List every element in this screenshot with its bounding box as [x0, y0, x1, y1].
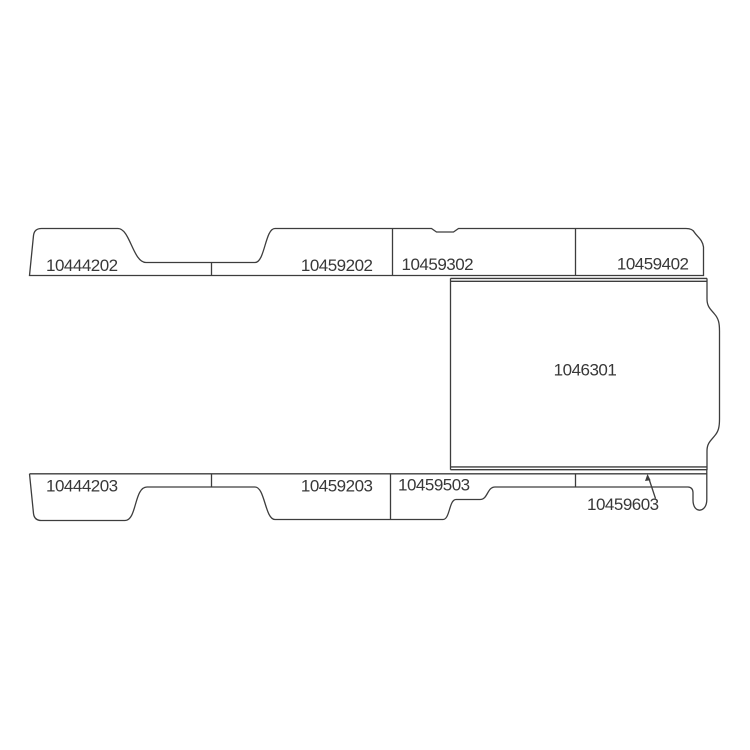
parts-diagram-canvas: 10444202 10459202 10459302 10459402 1046… — [0, 0, 750, 750]
part-label-10459302: 10459302 — [402, 255, 474, 274]
part-10459603-arrowhead — [645, 474, 651, 481]
part-label-1046301: 1046301 — [554, 361, 617, 380]
part-label-10459203: 10459203 — [301, 477, 373, 496]
parts-diagram-page: 10444202 10459202 10459302 10459402 1046… — [0, 0, 750, 750]
part-label-10444203: 10444203 — [46, 477, 118, 496]
part-label-10459503: 10459503 — [398, 476, 470, 495]
center-panel-right-edge — [707, 278, 720, 470]
part-label-10444202: 10444202 — [46, 256, 118, 275]
part-labels: 10444202 10459202 10459302 10459402 1046… — [46, 255, 689, 515]
part-label-10459202: 10459202 — [301, 256, 373, 275]
part-label-10459402: 10459402 — [617, 255, 689, 274]
part-label-10459603: 10459603 — [587, 495, 659, 514]
